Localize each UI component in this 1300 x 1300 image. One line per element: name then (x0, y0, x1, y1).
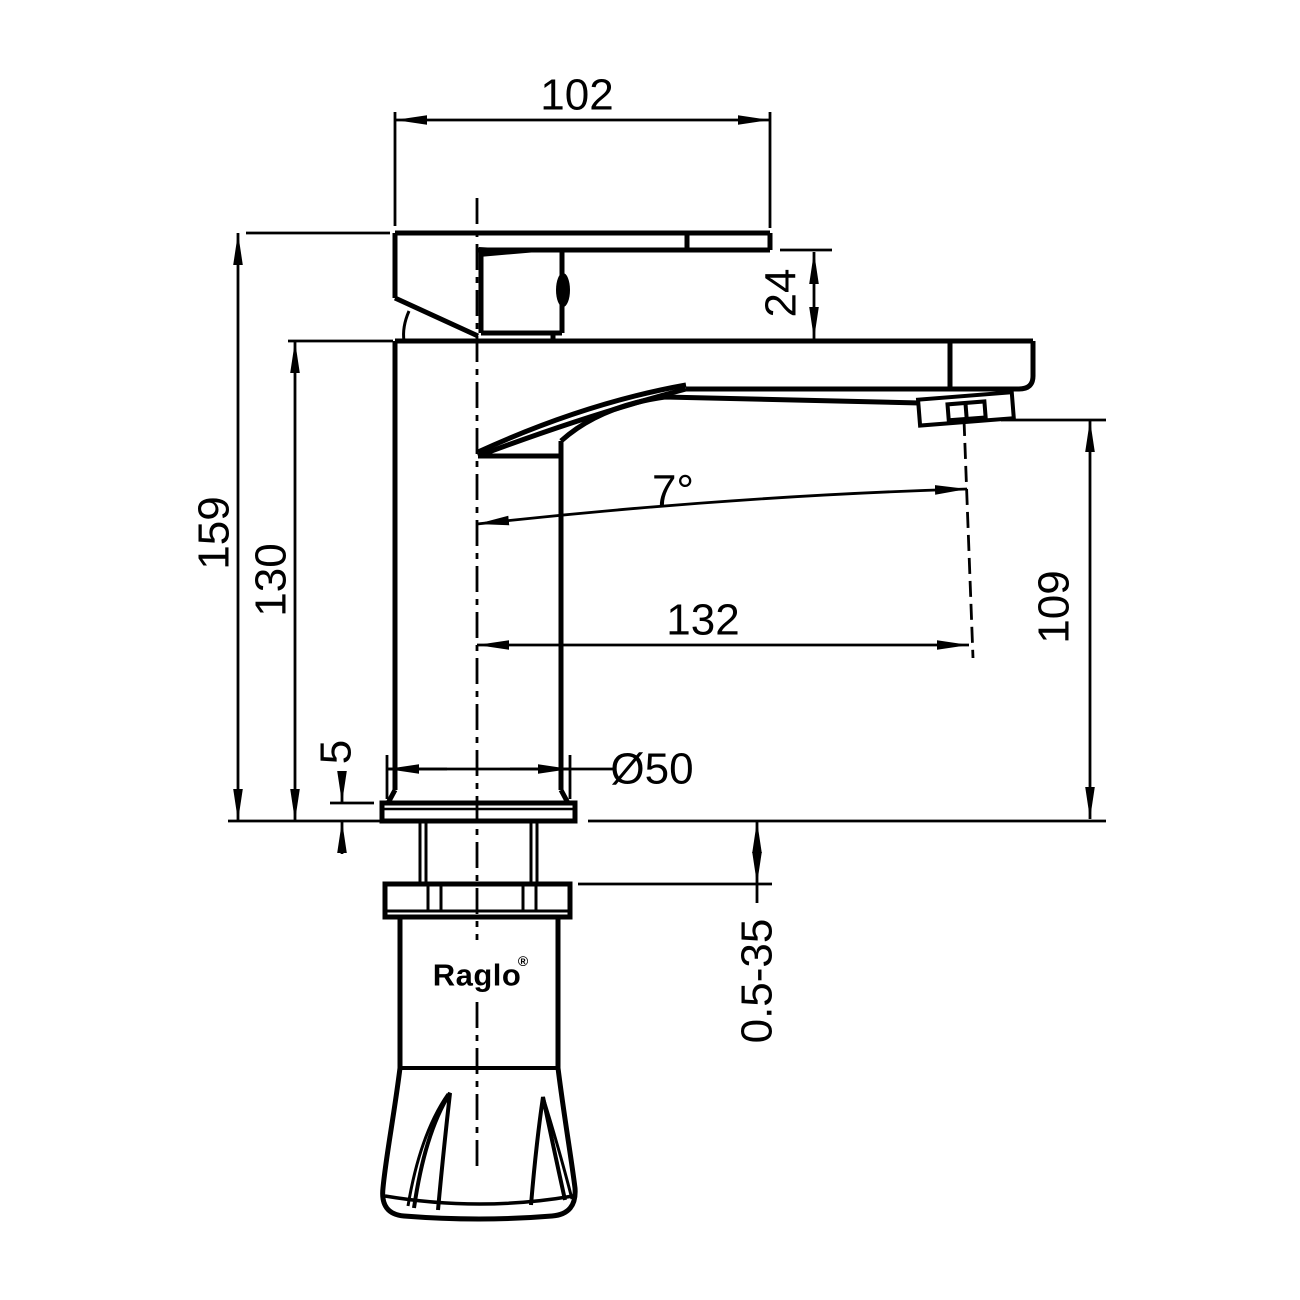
dimension-overall-height: 159 (190, 233, 391, 821)
registered-mark: ® (518, 953, 529, 969)
dimension-handle-height-label: 24 (757, 269, 806, 318)
handle-pivot-button (556, 273, 570, 307)
dimension-flange-thickness-label: 5 (312, 740, 361, 764)
threaded-shank (420, 821, 537, 884)
supply-pipe (400, 917, 558, 1068)
aerator (918, 392, 1014, 425)
dimension-spout-reach: 132 (477, 596, 969, 646)
dimension-handle-height: 24 (757, 250, 833, 339)
dimension-base-diameter: Ø50 (387, 745, 694, 800)
base-flange (382, 803, 575, 821)
faucet-dimension-drawing: Raglo ® 102 24 159 130 109 (0, 0, 1300, 1300)
dimension-spout-reach-label: 132 (666, 596, 739, 645)
dimension-outlet-angle-label: 7° (652, 467, 694, 516)
dimension-mount-range-label: 0.5-35 (733, 919, 782, 1044)
dimension-base-diameter-label: Ø50 (610, 745, 693, 794)
technical-drawing-page: Raglo ® 102 24 159 130 109 (0, 0, 1300, 1300)
dimension-mount-range: 0.5-35 (578, 821, 782, 1043)
faucet-handle (395, 233, 770, 341)
dimension-handle-width-label: 102 (540, 71, 613, 120)
dimension-handle-width: 102 (395, 71, 770, 229)
dimension-overall-height-label: 159 (190, 496, 239, 569)
dimension-flange-thickness: 5 (312, 740, 375, 854)
faucet-outline: Raglo ® (382, 198, 1033, 1219)
dimension-outlet-height: 109 (1001, 420, 1106, 819)
brand-text: Raglo (433, 958, 522, 993)
flared-foot (383, 1068, 575, 1219)
dimension-body-height-label: 130 (247, 543, 296, 616)
dimension-outlet-height-label: 109 (1030, 570, 1079, 643)
brand-logo: Raglo ® (433, 953, 529, 993)
